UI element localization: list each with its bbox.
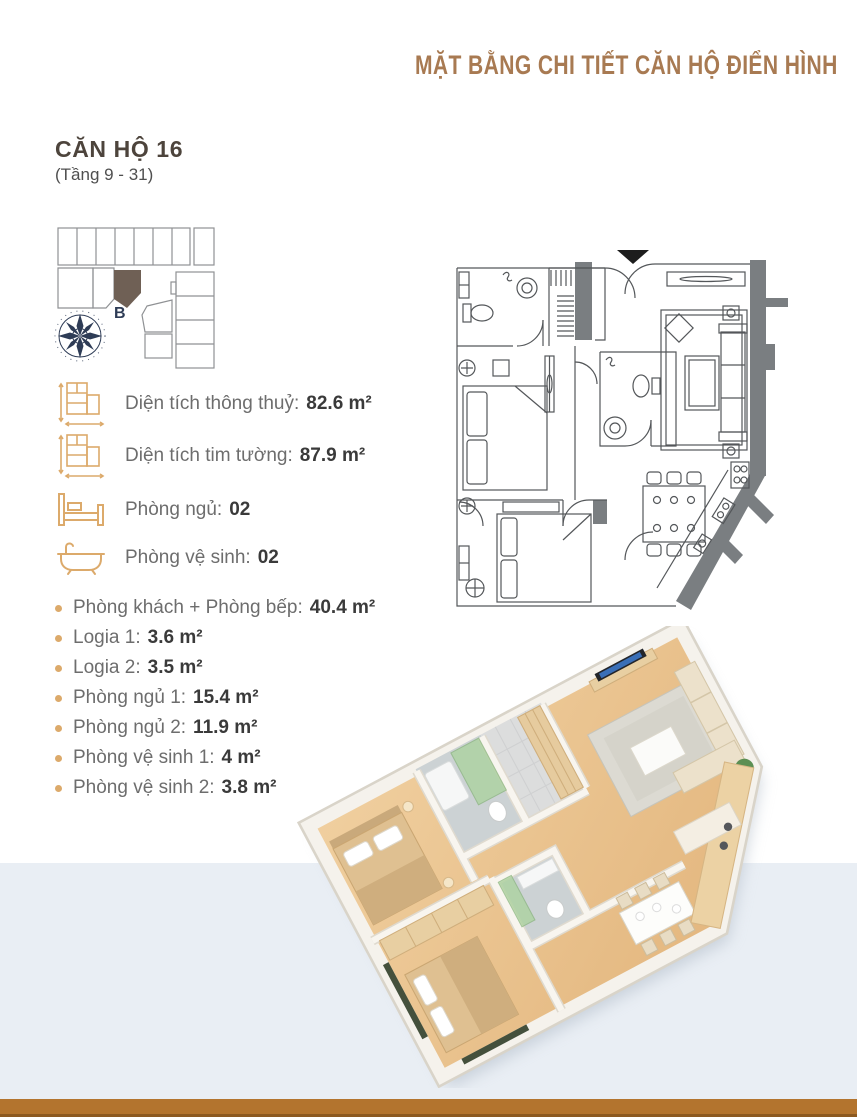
room-value: 3.8 m² [222, 777, 277, 799]
bathtub-icon [55, 539, 107, 577]
spec-row: Diện tích thông thuỷ:82.6 m² [55, 380, 435, 428]
spec-label: Phòng ngủ: [125, 499, 222, 520]
room-label: Phòng vệ sinh 2: [73, 777, 215, 799]
bullet-icon [55, 725, 62, 732]
room-value: 3.6 m² [148, 627, 203, 649]
spec-list: Diện tích thông thuỷ:82.6 m² Diện tích t… [55, 380, 435, 578]
brochure-page: MẶT BẰNG CHI TIẾT CĂN HỘ ĐIỂN HÌNH CĂN H… [0, 0, 857, 1117]
spec-label: Diện tích tim tường: [125, 445, 293, 466]
spec-value: 82.6 m² [306, 393, 371, 414]
bullet-icon [55, 695, 62, 702]
floor-area-icon [55, 381, 107, 427]
spec-row: Diện tích tim tường:87.9 m² [55, 432, 435, 480]
room-label: Logia 1: [73, 627, 141, 649]
apartment-floors: (Tầng 9 - 31) [55, 165, 153, 185]
room-label: Phòng ngủ 2: [73, 717, 186, 739]
room-value: 15.4 m² [193, 687, 258, 709]
bullet-icon [55, 605, 62, 612]
room-value: 4 m² [222, 747, 261, 769]
spec-row: Phòng vệ sinh:02 [55, 538, 435, 578]
spec-value: 02 [258, 547, 279, 568]
bed-icon [55, 491, 107, 529]
room-label: Logia 2: [73, 657, 141, 679]
room-value: 40.4 m² [310, 597, 375, 619]
room-label: Phòng vệ sinh 1: [73, 747, 215, 769]
footer-bar [0, 1099, 857, 1117]
room-item: Phòng khách + Phòng bếp:40.4 m² [55, 593, 375, 623]
floor-area-icon [55, 433, 107, 479]
room-label: Phòng ngủ 1: [73, 687, 186, 709]
spec-value: 87.9 m² [300, 445, 365, 466]
bullet-icon [55, 755, 62, 762]
page-title: MẶT BẰNG CHI TIẾT CĂN HỘ ĐIỂN HÌNH [415, 50, 838, 81]
apartment-name: CĂN HỘ 16 [55, 136, 183, 163]
north-label: B [114, 305, 126, 322]
unit-location-map: B [48, 220, 228, 372]
bullet-icon [55, 785, 62, 792]
bullet-icon [55, 635, 62, 642]
room-value: 3.5 m² [148, 657, 203, 679]
highlighted-unit [114, 270, 141, 308]
bullet-icon [55, 665, 62, 672]
room-label: Phòng khách + Phòng bếp: [73, 597, 303, 619]
spec-row: Phòng ngủ:02 [55, 490, 435, 530]
3d-floorplan-render [283, 626, 839, 1088]
spec-value: 02 [229, 499, 250, 520]
room-value: 11.9 m² [193, 717, 257, 739]
spec-label: Phòng vệ sinh: [125, 547, 251, 568]
spec-label: Diện tích thông thuỷ: [125, 393, 299, 414]
entry-arrow [617, 250, 649, 264]
2d-floorplan [445, 248, 843, 616]
